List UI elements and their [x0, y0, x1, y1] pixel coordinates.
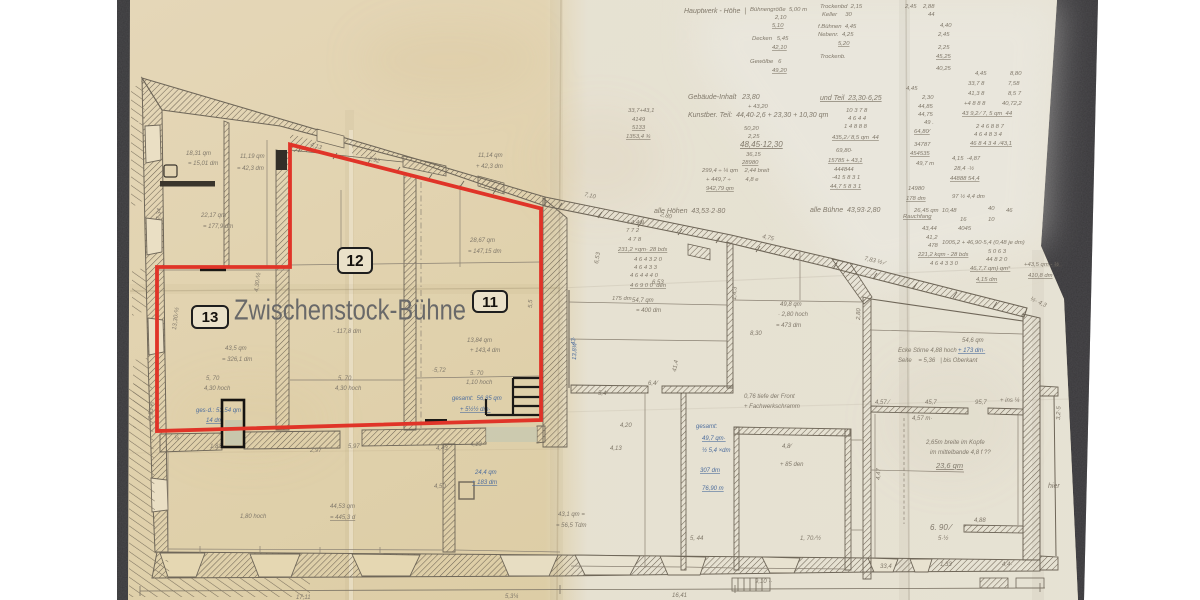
svg-text:5, 70: 5, 70	[338, 376, 352, 382]
svg-text:4,4·: 4,4·	[1002, 562, 1012, 568]
svg-text:2,10: 2,10	[770, 15, 787, 21]
svg-text:6,53: 6,53	[652, 280, 664, 286]
svg-text:4 6 4 4 4 0: 4 6 4 4 4 0	[630, 273, 659, 279]
svg-text:2,34: 2,34	[156, 207, 163, 221]
svg-text:23,6 qm: 23,6 qm	[935, 461, 963, 470]
svg-text:36,15: 36,15	[746, 152, 761, 158]
svg-text:4,50: 4,50	[434, 484, 446, 490]
svg-text:·5,72: ·5,72	[432, 368, 446, 374]
svg-text:¼·: ¼·	[174, 436, 181, 442]
svg-text:0,76 tiefe der Front: 0,76 tiefe der Front	[744, 394, 795, 400]
svg-text:40: 40	[988, 206, 995, 212]
svg-text:43 9,2 ⁄ 7, 5 qm 44: 43 9,2 ⁄ 7, 5 qm 44	[962, 111, 1013, 117]
svg-text:5, 70: 5, 70	[206, 376, 220, 382]
svg-text:gesamt: 56,85 qm: gesamt: 56,85 qm	[452, 396, 502, 402]
svg-text:44 8 2 0: 44 8 2 0	[986, 257, 1008, 263]
svg-text:4,13: 4,13	[610, 446, 622, 452]
svg-text:4 6 4 3 3 0: 4 6 4 3 3 0	[930, 261, 959, 267]
svg-text:10: 10	[988, 217, 995, 223]
svg-text:+ 42,3 dm: + 42,3 dm	[476, 164, 503, 170]
svg-text:gesamt:: gesamt:	[696, 424, 718, 430]
svg-text:Nebenr. 4,25: Nebenr. 4,25	[818, 32, 854, 38]
svg-text:4,88: 4,88	[974, 518, 986, 524]
svg-text:1005,2 + 46,90·5,4 (0,48 je dm: 1005,2 + 46,90·5,4 (0,48 je dm)	[942, 240, 1025, 246]
svg-text:2,30: 2,30	[921, 95, 934, 101]
svg-text:4149: 4149	[632, 117, 646, 123]
svg-text:9,10 ··: 9,10 ··	[755, 579, 772, 585]
svg-text:= 42,3 dm: = 42,3 dm	[237, 166, 264, 172]
svg-text:4 7 8: 4 7 8	[628, 237, 642, 243]
svg-text:Keller 30: Keller 30	[822, 12, 853, 18]
svg-text:95,7: 95,7	[975, 400, 987, 406]
svg-text:+ 43,20: + 43,20	[748, 104, 769, 110]
svg-text:5·½: 5·½	[938, 535, 948, 542]
svg-text:33,7 8: 33,7 8	[968, 81, 985, 87]
svg-text:13,84 qm: 13,84 qm	[467, 338, 492, 344]
svg-text:6. 90 ⁄: 6. 90 ⁄	[930, 523, 953, 532]
svg-text:49 .: 49 .	[924, 120, 934, 126]
svg-text:Gewölbe 6: Gewölbe 6	[750, 59, 782, 65]
svg-text:48,45·12,30: 48,45·12,30	[740, 140, 783, 149]
svg-text:410,8 dm: 410,8 dm	[1028, 273, 1053, 279]
svg-text:46: 46	[1006, 208, 1013, 214]
svg-text:+ 183 dm: + 183 dm	[472, 480, 497, 486]
svg-text:69,80·: 69,80·	[836, 148, 853, 154]
svg-text:= 147,15 dm: = 147,15 dm	[468, 249, 502, 255]
svg-text:175 dm: 175 dm	[612, 296, 632, 302]
svg-text:435,2 ⁄ 8,5 qm 44: 435,2 ⁄ 8,5 qm 44	[832, 135, 880, 141]
svg-text:24,4 qm: 24,4 qm	[474, 470, 497, 476]
svg-text:4,13: 4,13	[470, 442, 482, 448]
svg-text:44,85: 44,85	[918, 104, 933, 110]
svg-text:11,19 qm: 11,19 qm	[240, 154, 265, 160]
svg-text:5,5: 5,5	[528, 299, 534, 308]
svg-text:5 0 6 3: 5 0 6 3	[988, 249, 1007, 255]
svg-text:97 ½ 4,4 dm: 97 ½ 4,4 dm	[952, 193, 985, 200]
svg-text:4 6 4 4: 4 6 4 4	[848, 116, 867, 122]
svg-text:43·: 43·	[571, 336, 577, 345]
svg-text:4,57 m·: 4,57 m·	[912, 416, 932, 422]
svg-text:hier: hier	[1048, 483, 1060, 490]
svg-text:45,7: 45,7	[925, 400, 937, 406]
svg-text:42,10: 42,10	[772, 45, 787, 51]
svg-text:= 445,3 d: = 445,3 d	[330, 515, 356, 521]
svg-text:4,45: 4,45	[906, 86, 918, 92]
svg-text:50,20: 50,20	[744, 126, 759, 132]
svg-text:43,5 qm: 43,5 qm	[225, 346, 247, 352]
svg-text:1353,4 ¾: 1353,4 ¾	[626, 134, 651, 140]
svg-text:2,65m breite im Kopfe: 2,65m breite im Kopfe	[925, 440, 985, 446]
svg-text:Bühnengröße 5,00 m: Bühnengröße 5,00 m	[750, 7, 807, 13]
svg-text:1, 70 ⁄½: 1, 70 ⁄½	[800, 535, 821, 542]
svg-text:+ ins ¼: + ins ¼	[1000, 398, 1020, 404]
svg-text:5,20: 5,20	[838, 41, 850, 47]
svg-text:11: 11	[482, 294, 498, 311]
svg-text:16: 16	[960, 217, 967, 223]
svg-text:16,41: 16,41	[672, 593, 687, 599]
svg-text:4,45: 4,45	[975, 71, 987, 77]
svg-text:41,3 8: 41,3 8	[968, 91, 985, 97]
svg-text:49,20: 49,20	[772, 68, 787, 74]
svg-text:46 8 4 3 4 ⁄43,1: 46 8 4 3 4 ⁄43,1	[970, 141, 1012, 147]
svg-text:im mittelbande 4,8 f ??: im mittelbande 4,8 f ??	[930, 450, 991, 456]
svg-text:49,8 qm: 49,8 qm	[780, 302, 802, 308]
svg-text:34787: 34787	[914, 142, 931, 148]
svg-text:5133: 5133	[632, 125, 646, 131]
svg-text:= 400 dm: = 400 dm	[636, 308, 661, 314]
svg-text:15785 + 43,1: 15785 + 43,1	[828, 158, 863, 164]
svg-text:+ 143,4 dm: + 143,4 dm	[470, 348, 500, 354]
svg-text:+ 173 dm·: + 173 dm·	[958, 348, 985, 354]
svg-text:4 4 4 9: 4 4 4 9	[626, 220, 645, 226]
svg-text:4 6 4 3 2 0: 4 6 4 3 2 0	[634, 257, 663, 263]
svg-text:4,30 hoch: 4,30 hoch	[335, 386, 362, 392]
svg-text:44888 54,4: 44888 54,4	[950, 176, 980, 182]
svg-text:2,45: 2,45	[937, 32, 950, 38]
svg-text:478: 478	[928, 243, 939, 249]
svg-text:11,14 qm: 11,14 qm	[478, 153, 503, 159]
svg-text:178 dm: 178 dm	[906, 196, 926, 202]
svg-text:307 dm: 307 dm	[700, 468, 720, 474]
svg-text:Gebäude-Inhalt 23,80: Gebäude-Inhalt 23,80	[688, 94, 760, 101]
svg-text:231,2 ×qm· 28 bds: 231,2 ×qm· 28 bds	[617, 247, 667, 253]
svg-text:54,7 qm: 54,7 qm	[632, 298, 654, 304]
svg-text:43,1 qm =: 43,1 qm =	[558, 512, 585, 518]
svg-text:+ 449,7 ÷ 4,8 e: + 449,7 ÷ 4,8 e	[706, 177, 759, 183]
svg-text:8,80: 8,80	[1010, 71, 1022, 77]
svg-text:18,31 qm: 18,31 qm	[186, 151, 211, 157]
svg-text:+43,5 qm - ½: +43,5 qm - ½	[1024, 261, 1059, 268]
svg-text:½ 5,4 ×dm: ½ 5,4 ×dm	[702, 447, 731, 454]
svg-text:alle Bühne 43,93·2,80: alle Bühne 43,93·2,80	[810, 207, 881, 214]
svg-text:1,10 hoch: 1,10 hoch	[466, 380, 493, 386]
svg-text:3,2·5: 3,2·5	[1056, 406, 1062, 421]
svg-text:13: 13	[202, 309, 219, 326]
svg-text:4,57 ⁄: 4,57 ⁄	[875, 400, 891, 406]
svg-text:f.Bühnen 4,45: f.Bühnen 4,45	[818, 24, 857, 30]
svg-text:= 56,5 Tdm: = 56,5 Tdm	[556, 523, 587, 529]
svg-text:Seite = 5,36 | bis Oberka: Seite = 5,36 | bis Oberkant	[898, 358, 978, 364]
svg-text:2,97: 2,97	[309, 448, 322, 454]
svg-text:44: 44	[928, 12, 935, 18]
svg-text:14 dm: 14 dm	[206, 418, 223, 424]
svg-text:33,4: 33,4	[880, 564, 892, 570]
svg-text:17,11: 17,11	[296, 595, 311, 600]
svg-text:942,79 qm: 942,79 qm	[706, 186, 734, 192]
svg-text:1,33: 1,33	[940, 562, 952, 568]
svg-text:44,7 5 8 3 1: 44,7 5 8 3 1	[830, 184, 861, 190]
svg-text:+4 8 8 8: +4 8 8 8	[964, 101, 986, 107]
svg-text:454535: 454535	[910, 151, 930, 157]
svg-text:44,75: 44,75	[918, 112, 933, 118]
svg-text:5. 70: 5. 70	[470, 371, 484, 377]
svg-text:4,15 dm: 4,15 dm	[976, 277, 997, 283]
svg-text:12: 12	[346, 253, 363, 270]
svg-text:28980: 28980	[741, 160, 759, 166]
svg-text:40,72,2: 40,72,2	[1002, 101, 1022, 107]
svg-text:Kunstber. Teil: 44,40·2,6 + 2: Kunstber. Teil: 44,40·2,6 + 23,30 + 10,3…	[688, 112, 829, 119]
svg-text:76,90 m: 76,90 m	[702, 486, 724, 492]
svg-text:49,7 m: 49,7 m	[916, 161, 934, 167]
svg-text:1,4,3: 1,4,3	[732, 286, 738, 300]
svg-text:4045: 4045	[958, 226, 972, 232]
svg-text:7,58: 7,58	[1008, 81, 1020, 87]
svg-text:- 117,8 dm: - 117,8 dm	[333, 329, 361, 335]
svg-text:22,17 qm: 22,17 qm	[200, 213, 226, 219]
svg-text:= 473 dm: = 473 dm	[776, 323, 801, 329]
svg-text:Ecke Stirne 4,88 hoch: Ecke Stirne 4,88 hoch	[898, 348, 957, 354]
svg-text:+ 85 den: + 85 den	[780, 462, 804, 468]
svg-text:4,47: 4,47	[876, 468, 882, 481]
svg-text:28,4 ·½: 28,4 ·½	[953, 165, 974, 172]
svg-text:4 6 4 3 3: 4 6 4 3 3	[634, 265, 658, 271]
svg-text:41,2: 41,2	[926, 235, 938, 241]
svg-text:4 6 4 8 3 4: 4 6 4 8 3 4	[974, 132, 1003, 138]
svg-text:43,44: 43,44	[922, 226, 937, 232]
svg-text:5,97: 5,97	[348, 444, 360, 450]
svg-text:5,3¼: 5,3¼	[505, 594, 518, 600]
svg-text:Decken 5,45: Decken 5,45	[752, 36, 789, 42]
svg-text:28,67 qm: 28,67 qm	[469, 238, 495, 244]
svg-text:5,10: 5,10	[772, 23, 784, 29]
svg-text:1 4 8 8 8: 1 4 8 8 8	[844, 124, 868, 130]
svg-text:+ Fachwerkschramm: + Fachwerkschramm	[744, 404, 800, 410]
svg-text:4,30 hoch: 4,30 hoch	[204, 386, 231, 392]
svg-text:ges·d.: 53,54 qm: ges·d.: 53,54 qm	[196, 408, 241, 414]
svg-text:2,45 2,88: 2,45 2,88	[904, 4, 935, 10]
svg-text:7 7 2: 7 7 2	[626, 228, 640, 234]
svg-text:4,43: 4,43	[436, 446, 448, 452]
svg-text:1,80 hoch: 1,80 hoch	[240, 514, 267, 520]
svg-text:2,80: 2,80	[856, 308, 862, 322]
svg-text:4,20: 4,20	[620, 423, 632, 429]
svg-text:221,2 kqm - 28 bds: 221,2 kqm - 28 bds	[917, 252, 968, 258]
svg-text:Zwischenstock-Bühne: Zwischenstock-Bühne	[234, 295, 466, 327]
svg-text:299,4 ÷ ¼ qm 2,44 breit: 299,4 ÷ ¼ qm 2,44 breit	[701, 168, 769, 174]
svg-text:64,80⁄: 64,80⁄	[914, 129, 932, 135]
svg-text:Trockenb.: Trockenb.	[820, 54, 846, 60]
svg-text:10 3 7 8: 10 3 7 8	[846, 108, 868, 114]
svg-text:Trockenbd 2,15: Trockenbd 2,15	[820, 4, 863, 10]
svg-text:· 2,80 hoch: · 2,80 hoch	[778, 312, 809, 318]
svg-text:444844: 444844	[834, 167, 854, 173]
svg-text:44,53 qm: 44,53 qm	[330, 504, 355, 510]
svg-text:45,25: 45,25	[936, 54, 951, 60]
svg-text:4,15 -4,87: 4,15 -4,87	[952, 156, 981, 162]
svg-text:46,7,7 qm) qm°: 46,7,7 qm) qm°	[970, 266, 1011, 272]
svg-text:1,83: 1,83	[210, 444, 222, 450]
svg-text:Hauptwerk - Höhe |: Hauptwerk - Höhe |	[684, 8, 746, 15]
svg-text:40,25: 40,25	[936, 66, 951, 72]
svg-text:2 4 6 8 8 7: 2 4 6 8 8 7	[975, 124, 1005, 130]
svg-text:54,6 qm: 54,6 qm	[962, 338, 984, 344]
svg-text:Rauchfang: Rauchfang	[903, 214, 932, 220]
svg-text:49,7 qm·: 49,7 qm·	[702, 436, 726, 442]
svg-text:2,25: 2,25	[937, 45, 950, 51]
svg-text:14980: 14980	[908, 186, 925, 192]
svg-text:8,5 7: 8,5 7	[1008, 91, 1022, 97]
svg-text:33,7+43,1: 33,7+43,1	[628, 108, 654, 114]
svg-text:8,30: 8,30	[750, 331, 762, 337]
svg-text:= 177,9 dm: = 177,9 dm	[203, 224, 233, 230]
svg-text:= 15,01 dm: = 15,01 dm	[188, 161, 218, 167]
svg-text:4,40: 4,40	[940, 23, 952, 29]
svg-text:= 326,1 dm: = 326,1 dm	[222, 357, 252, 363]
svg-text:5, 44: 5, 44	[690, 536, 704, 542]
svg-text:und Teil 23,30·6,25: und Teil 23,30·6,25	[820, 95, 882, 102]
svg-text:-41 5 8 3 1: -41 5 8 3 1	[832, 175, 860, 181]
